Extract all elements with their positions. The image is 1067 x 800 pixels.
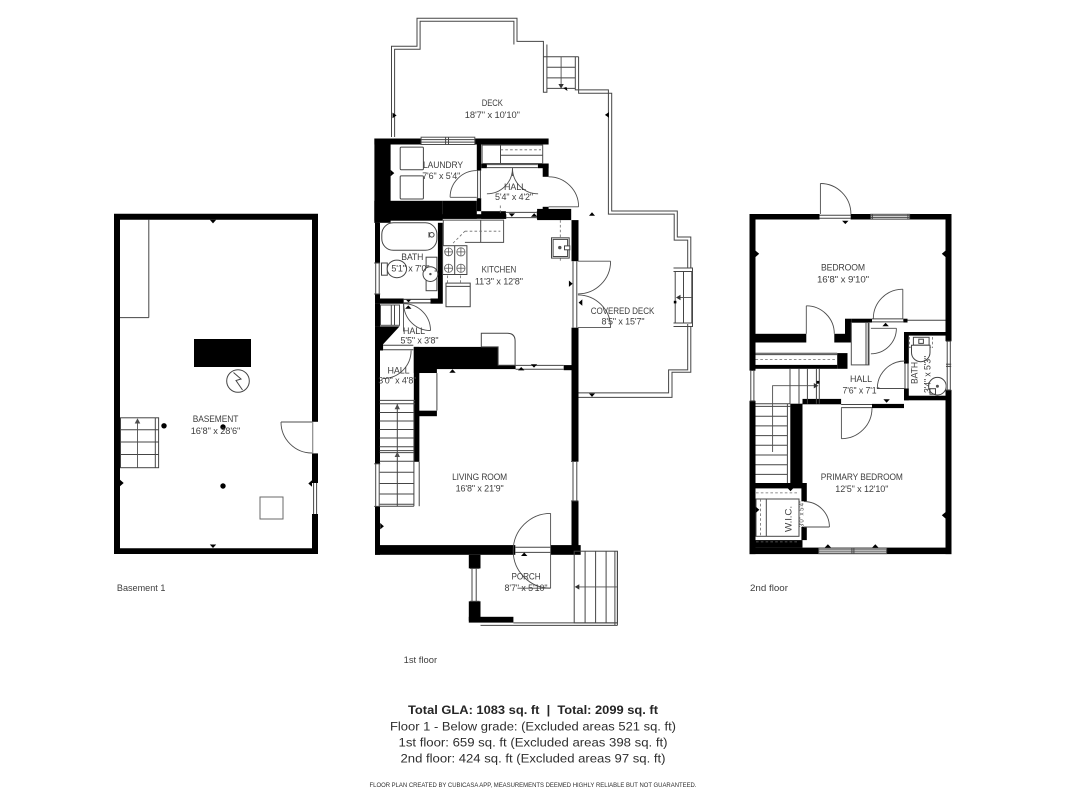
svg-text:PRIMARY BEDROOM: PRIMARY BEDROOM (821, 472, 903, 482)
svg-text:Floor 1 - Below grade: (Exclud: Floor 1 - Below grade: (Excluded areas 5… (390, 719, 676, 733)
svg-text:2nd floor: 424 sq. ft (Exclude: 2nd floor: 424 sq. ft (Excluded areas 97… (401, 751, 666, 765)
svg-text:BEDROOM: BEDROOM (821, 263, 865, 273)
svg-text:16'8" x 9'10": 16'8" x 9'10" (817, 274, 869, 284)
svg-text:BATH: BATH (910, 362, 920, 384)
svg-text:DECK: DECK (482, 98, 503, 108)
svg-text:BATH: BATH (401, 252, 423, 262)
svg-text:COVERED DECK: COVERED DECK (591, 306, 655, 316)
svg-text:16'8" x 28'6": 16'8" x 28'6" (191, 426, 241, 436)
svg-text:3'0" x 5'4": 3'0" x 5'4" (800, 501, 806, 527)
svg-text:18'7" x 10'10": 18'7" x 10'10" (465, 110, 520, 120)
svg-text:16'8" x 21'9": 16'8" x 21'9" (456, 484, 504, 494)
svg-text:FLOOR PLAN CREATED BY CUBICASA: FLOOR PLAN CREATED BY CUBICASA APP, MEAS… (370, 782, 697, 789)
svg-text:BASEMENT: BASEMENT (193, 414, 239, 424)
svg-text:Total GLA: 1083 sq. ft | Tot: Total GLA: 1083 sq. ft | Total: 2099 sq.… (408, 703, 658, 717)
svg-text:7'6" x 5'4": 7'6" x 5'4" (422, 171, 460, 181)
svg-text:HALL: HALL (403, 326, 425, 336)
svg-text:8'5" x 15'7": 8'5" x 15'7" (602, 317, 645, 327)
svg-text:2nd floor: 2nd floor (750, 583, 788, 593)
svg-text:W.I.C.: W.I.C. (784, 506, 794, 532)
svg-text:7'6" x 7'1": 7'6" x 7'1" (843, 386, 880, 396)
svg-text:HALL: HALL (850, 374, 872, 384)
svg-text:3'0" x 4'8": 3'0" x 4'8" (378, 375, 416, 385)
svg-text:11'3" x 12'8": 11'3" x 12'8" (475, 276, 523, 286)
svg-text:KITCHEN: KITCHEN (482, 265, 517, 275)
svg-text:LIVING ROOM: LIVING ROOM (452, 472, 507, 482)
svg-text:8'7" x 5'10": 8'7" x 5'10" (505, 583, 548, 593)
svg-text:12'5" x 12'10": 12'5" x 12'10" (835, 484, 888, 494)
svg-text:5'4" x 4'2": 5'4" x 4'2" (495, 192, 533, 202)
svg-text:HALL: HALL (388, 365, 410, 375)
svg-text:5'5" x 3'8": 5'5" x 3'8" (401, 336, 439, 346)
svg-text:HALL: HALL (504, 182, 526, 192)
svg-text:LAUNDRY: LAUNDRY (423, 160, 463, 170)
svg-text:PORCH: PORCH (512, 572, 541, 582)
svg-text:Basement 1: Basement 1 (117, 583, 165, 593)
svg-text:1st floor: 1st floor (404, 655, 438, 665)
svg-text:3'4" x 5'3": 3'4" x 5'3" (923, 356, 933, 393)
svg-text:1st floor: 659 sq. ft (Exclude: 1st floor: 659 sq. ft (Excluded areas 39… (399, 735, 668, 749)
svg-text:5'1" x 7'0": 5'1" x 7'0" (391, 264, 429, 274)
